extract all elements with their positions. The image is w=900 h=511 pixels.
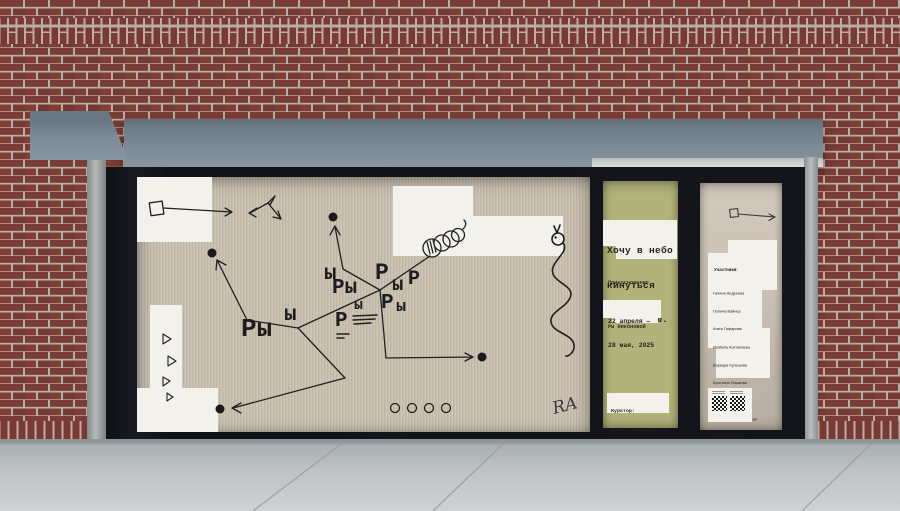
poster-letter: Ры	[332, 278, 357, 299]
poster-letter: ы	[284, 305, 297, 326]
participant-name: Кристина Пашкова	[713, 381, 796, 387]
qr-caption-line	[712, 391, 725, 392]
qr-code-icon	[712, 396, 727, 411]
square-arrow-doodle	[149, 201, 232, 216]
poster-letter: ы	[354, 298, 363, 313]
snake-eye	[554, 236, 556, 238]
participant-name: Галина Андреева	[713, 291, 796, 297]
snake-doodle	[551, 225, 574, 356]
poster-line-art: RA	[137, 177, 590, 432]
left-exhibition-poster: Хочу в небо кинуться собакою. Прикоснове…	[603, 181, 678, 428]
poster-letter: ы	[392, 276, 403, 295]
square-arrow-doodle-small	[700, 183, 782, 243]
date-line: 22 апреля —	[608, 318, 654, 326]
date-line: 28 мая, 2025	[608, 342, 654, 350]
poster-letter: Р	[381, 293, 394, 314]
qr-caption-line	[730, 391, 743, 392]
sidewalk-joints	[0, 439, 900, 511]
awning	[124, 119, 823, 167]
awning-soffit	[592, 158, 823, 167]
poster-letter: Ры	[241, 316, 272, 342]
exhibition-dates: 22 апреля — 28 мая, 2025	[608, 302, 654, 366]
participants-list: Галина Андреева Полина Вайнер Агата Гафа…	[713, 279, 796, 453]
right-info-poster: Участники: Галина Андреева Полина Вайнер…	[700, 183, 782, 430]
qr-caption-line	[712, 393, 725, 394]
curator-line: Куратор:	[611, 409, 659, 415]
artist-signature: RA	[549, 393, 579, 419]
main-window-poster: RA ы Ры Р ы Р ы Р ы Р ы Ры	[137, 177, 590, 432]
storefront-scene: RA ы Ры Р ы Р ы Р ы Р ы Ры Хочу в небо к…	[0, 0, 900, 511]
qr-caption-line	[730, 393, 743, 394]
participant-name: Полина Вайнер	[713, 309, 796, 315]
qr-column	[730, 391, 745, 419]
title-line: Хочу в небо	[607, 245, 673, 257]
qr-column	[712, 391, 727, 419]
qr-code-block	[708, 388, 752, 422]
participants-label: Участники:	[714, 268, 738, 272]
circle-row	[391, 404, 451, 413]
triangle-marks	[163, 334, 176, 401]
sidewalk	[0, 439, 900, 511]
poster-letter: Р	[408, 270, 420, 290]
poster-letter: Р	[375, 262, 389, 285]
branch-arrows-doodle	[249, 196, 281, 219]
scribble-doodle	[423, 220, 466, 257]
participant-name: Варвара Кулешова	[713, 363, 796, 369]
left-downspout	[87, 160, 106, 441]
participant-name: Агата Гафарова	[713, 327, 796, 333]
qr-code-icon	[730, 396, 745, 411]
poster-letter: ы	[396, 299, 406, 316]
right-downspout	[804, 157, 818, 441]
curator-line: Алёна Герасимчук	[611, 427, 659, 433]
participant-name: Изабель Кокталиева	[713, 345, 796, 351]
poster-letter: Р	[335, 311, 348, 332]
subtitle-line: Прикосновение	[608, 280, 649, 287]
